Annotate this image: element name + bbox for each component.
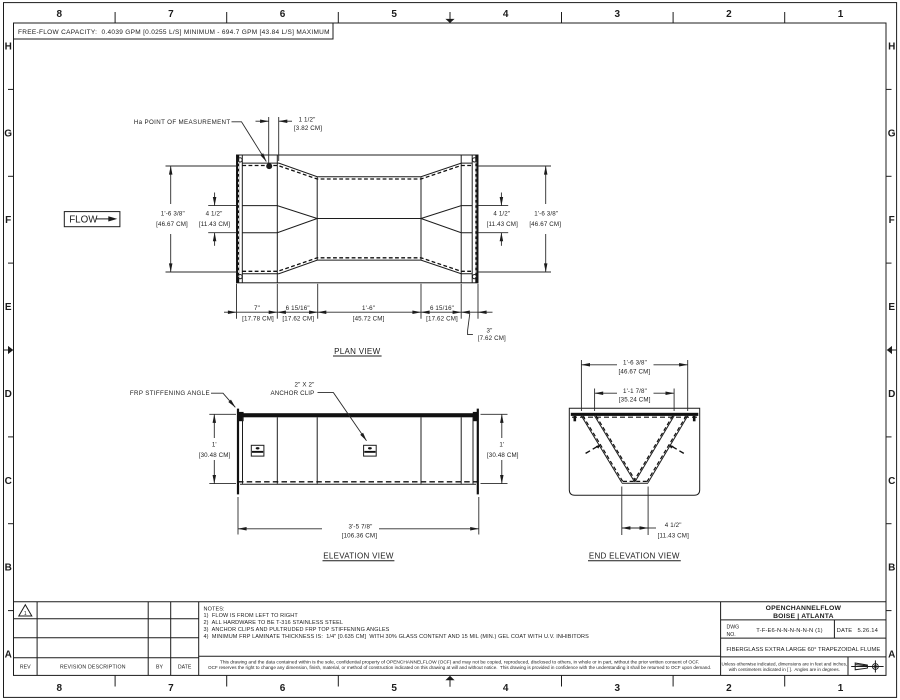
- svg-text:F: F: [5, 215, 11, 226]
- svg-text:[106.36 CM]: [106.36 CM]: [342, 532, 377, 539]
- svg-text:2: 2: [726, 9, 732, 20]
- svg-text:FLOW: FLOW: [69, 215, 98, 226]
- svg-text:6 15/16": 6 15/16": [430, 305, 454, 312]
- svg-text:E: E: [5, 302, 12, 313]
- svg-text:2: 2: [726, 683, 732, 694]
- svg-text:T-F-E6-N-N-N-N-N-N (1): T-F-E6-N-N-N-N-N-N (1): [756, 628, 822, 634]
- svg-text:D: D: [888, 389, 895, 400]
- svg-text:4: 4: [503, 9, 509, 20]
- svg-text:3) ANCHOR CLIPS AND PULTRUDED: 3) ANCHOR CLIPS AND PULTRUDED FRP TOP ST…: [204, 627, 390, 633]
- svg-text:6: 6: [280, 9, 286, 20]
- svg-text:6: 6: [280, 683, 286, 694]
- svg-text:H: H: [5, 42, 12, 53]
- svg-text:G: G: [4, 128, 12, 139]
- svg-text:1: 1: [24, 611, 27, 617]
- svg-text:1'-6 3/8": 1'-6 3/8": [534, 211, 558, 218]
- svg-text:5: 5: [391, 9, 397, 20]
- svg-text:with centimeters indicated in: with centimeters indicated in [ ]. Angle…: [729, 667, 840, 672]
- svg-text:DWG: DWG: [727, 625, 740, 631]
- svg-text:4 1/2": 4 1/2": [493, 211, 510, 218]
- svg-text:2) ALL HARDWARE TO BE T-316 S: 2) ALL HARDWARE TO BE T-316 STAINLESS ST…: [204, 620, 344, 626]
- svg-text:1': 1': [499, 442, 504, 449]
- svg-text:FREE-FLOW CAPACITY: 0.4039 GP: FREE-FLOW CAPACITY: 0.4039 GPM [0.0255 L…: [18, 29, 330, 36]
- svg-text:F: F: [889, 215, 895, 226]
- svg-text:3: 3: [615, 683, 621, 694]
- svg-text:1': 1': [212, 442, 217, 449]
- svg-text:3": 3": [487, 327, 493, 334]
- svg-text:[7.62 CM]: [7.62 CM]: [478, 335, 506, 342]
- svg-text:5: 5: [391, 683, 397, 694]
- svg-text:D: D: [5, 389, 12, 400]
- svg-text:7: 7: [168, 9, 174, 20]
- svg-text:8: 8: [57, 9, 63, 20]
- svg-text:4 1/2": 4 1/2": [206, 211, 223, 218]
- svg-text:[46.67 CM]: [46.67 CM]: [529, 221, 561, 228]
- svg-text:B: B: [888, 563, 895, 574]
- svg-text:7: 7: [168, 683, 174, 694]
- svg-text:[3.82 CM]: [3.82 CM]: [294, 125, 322, 132]
- svg-text:1) FLOW IS FROM LEFT TO RIGHT: 1) FLOW IS FROM LEFT TO RIGHT: [204, 613, 299, 619]
- svg-text:8: 8: [57, 683, 63, 694]
- svg-text:[11.43 CM]: [11.43 CM]: [199, 221, 230, 228]
- svg-text:1'-1 7/8": 1'-1 7/8": [623, 388, 647, 395]
- svg-text:B: B: [5, 563, 12, 574]
- svg-text:[11.43 CM]: [11.43 CM]: [487, 221, 518, 228]
- svg-text:[45.72 CM]: [45.72 CM]: [353, 316, 385, 323]
- svg-text:1'-6 3/8": 1'-6 3/8": [161, 211, 185, 218]
- svg-text:END ELEVATION VIEW: END ELEVATION VIEW: [589, 552, 680, 561]
- svg-text:1'-6": 1'-6": [362, 305, 375, 312]
- svg-text:BY: BY: [156, 665, 163, 671]
- svg-text:[35.24 CM]: [35.24 CM]: [619, 396, 651, 403]
- svg-text:1'-6 3/8": 1'-6 3/8": [623, 360, 647, 367]
- svg-text:OCF reserves the right to chan: OCF reserves the right to change any dim…: [208, 665, 711, 670]
- svg-text:ANCHOR CLIP: ANCHOR CLIP: [271, 390, 315, 397]
- svg-text:BOISE | ATLANTA: BOISE | ATLANTA: [773, 613, 834, 620]
- svg-text:FRP STIFFENING ANGLE: FRP STIFFENING ANGLE: [130, 390, 210, 397]
- svg-text:PLAN VIEW: PLAN VIEW: [334, 347, 380, 356]
- svg-text:C: C: [888, 476, 895, 487]
- svg-text:[17.62 CM]: [17.62 CM]: [282, 316, 314, 323]
- svg-text:[30.48 CM]: [30.48 CM]: [199, 452, 231, 459]
- svg-text:[30.48 CM]: [30.48 CM]: [487, 452, 519, 459]
- svg-text:4 1/2": 4 1/2": [665, 522, 682, 529]
- svg-text:DATE: DATE: [178, 665, 192, 671]
- svg-text:E: E: [888, 302, 895, 313]
- svg-text:7": 7": [254, 305, 260, 312]
- svg-text:NO.: NO.: [727, 632, 736, 638]
- svg-text:1: 1: [838, 9, 844, 20]
- svg-text:2" X 2": 2" X 2": [295, 381, 315, 388]
- svg-text:[11.43 CM]: [11.43 CM]: [658, 532, 689, 539]
- svg-text:[17.78 CM]: [17.78 CM]: [242, 316, 274, 323]
- svg-text:C: C: [5, 476, 12, 487]
- svg-text:[17.62 CM]: [17.62 CM]: [426, 316, 458, 323]
- svg-text:Unless otherwise indicated, di: Unless otherwise indicated, dimensions a…: [721, 661, 847, 666]
- svg-text:1: 1: [838, 683, 844, 694]
- svg-text:A: A: [888, 650, 895, 661]
- svg-text:DATE 5.26.14: DATE 5.26.14: [837, 628, 879, 634]
- svg-text:Ha POINT OF MEASUREMENT: Ha POINT OF MEASUREMENT: [134, 119, 231, 126]
- svg-text:[46.67 CM]: [46.67 CM]: [619, 369, 651, 376]
- svg-text:REV: REV: [20, 665, 31, 671]
- svg-text:H: H: [888, 42, 895, 53]
- svg-text:1 1/2": 1 1/2": [299, 116, 316, 123]
- svg-text:NOTES:: NOTES:: [204, 606, 226, 612]
- svg-text:3'-5 7/8": 3'-5 7/8": [349, 524, 373, 531]
- svg-text:REVISION DESCRIPTION: REVISION DESCRIPTION: [60, 665, 126, 671]
- svg-text:6 15/16": 6 15/16": [286, 305, 310, 312]
- svg-text:A: A: [5, 650, 12, 661]
- svg-text:[46.67 CM]: [46.67 CM]: [156, 221, 188, 228]
- svg-text:4) MINIMUM FRP LAMINATE THICK: 4) MINIMUM FRP LAMINATE THICKNESS IS: 1/…: [204, 634, 590, 640]
- svg-text:FIBERGLASS EXTRA LARGE 60° TRA: FIBERGLASS EXTRA LARGE 60° TRAPEZOIDAL F…: [726, 647, 880, 653]
- svg-text:OPENCHANNELFLOW: OPENCHANNELFLOW: [766, 605, 842, 612]
- svg-text:ELEVATION VIEW: ELEVATION VIEW: [323, 552, 394, 561]
- svg-text:G: G: [888, 128, 896, 139]
- svg-text:3: 3: [615, 9, 621, 20]
- svg-text:4: 4: [503, 683, 509, 694]
